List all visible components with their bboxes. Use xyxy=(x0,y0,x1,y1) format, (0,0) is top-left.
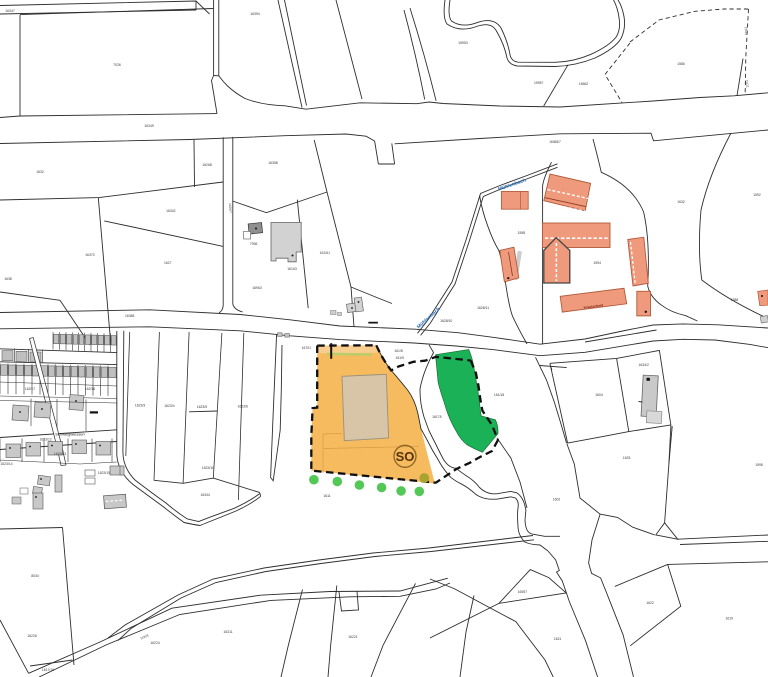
svg-text:1623/15: 1623/15 xyxy=(98,471,110,475)
svg-text:16368/7: 16368/7 xyxy=(549,140,561,144)
svg-text:1623/6: 1623/6 xyxy=(238,405,248,409)
svg-text:1611: 1611 xyxy=(323,494,330,498)
svg-text:162/16: 162/16 xyxy=(85,387,95,391)
svg-text:1592: 1592 xyxy=(753,193,761,197)
svg-text:1623/13: 1623/13 xyxy=(54,452,66,456)
svg-text:1628/11: 1628/11 xyxy=(477,306,489,310)
svg-text:1623/5: 1623/5 xyxy=(197,405,207,409)
svg-text:1632: 1632 xyxy=(677,200,685,204)
svg-text:16347: 16347 xyxy=(5,9,15,13)
svg-text:16370: 16370 xyxy=(85,253,95,257)
svg-text:7026: 7026 xyxy=(113,63,121,67)
svg-text:161/8: 161/8 xyxy=(394,349,403,353)
svg-text:1617/16: 1617/16 xyxy=(42,668,54,672)
svg-text:1632: 1632 xyxy=(36,170,44,174)
svg-text:1633: 1633 xyxy=(623,456,631,460)
svg-text:1619: 1619 xyxy=(725,616,733,620)
svg-text:16342: 16342 xyxy=(166,209,176,213)
svg-text:1621: 1621 xyxy=(554,637,562,641)
svg-text:8034: 8034 xyxy=(31,574,39,578)
svg-text:15/23: 15/23 xyxy=(744,27,748,35)
svg-text:1628/10: 1628/10 xyxy=(440,319,452,323)
svg-text:1634/2: 1634/2 xyxy=(639,363,649,367)
svg-text:1623/3: 1623/3 xyxy=(135,404,145,408)
svg-text:16562: 16562 xyxy=(579,82,589,86)
svg-text:1627: 1627 xyxy=(164,261,172,265)
svg-text:161/9: 161/9 xyxy=(395,356,404,360)
svg-text:16368: 16368 xyxy=(125,314,135,318)
svg-text:16394: 16394 xyxy=(250,12,260,16)
svg-text:1622: 1622 xyxy=(646,601,654,605)
svg-text:161/61: 161/61 xyxy=(320,251,330,255)
svg-text:1623/14: 1623/14 xyxy=(0,462,12,466)
svg-text:1598: 1598 xyxy=(755,463,763,467)
svg-text:16311: 16311 xyxy=(223,630,232,634)
svg-text:16226: 16226 xyxy=(27,634,37,638)
svg-text:1623/4: 1623/4 xyxy=(164,404,174,408)
svg-text:1604: 1604 xyxy=(595,393,603,397)
svg-text:1586: 1586 xyxy=(677,62,685,66)
svg-text:16178: 16178 xyxy=(432,415,442,419)
svg-text:16268: 16268 xyxy=(202,163,212,167)
svg-text:16163: 16163 xyxy=(287,267,297,271)
svg-text:SO: SO xyxy=(396,449,415,464)
svg-text:16963: 16963 xyxy=(252,286,262,290)
svg-text:1598: 1598 xyxy=(518,231,526,235)
svg-text:16701: 16701 xyxy=(302,346,312,350)
svg-text:1588: 1588 xyxy=(731,298,739,302)
svg-text:16224: 16224 xyxy=(150,641,160,645)
svg-text:16349: 16349 xyxy=(144,124,154,128)
svg-text:1623/16: 1623/16 xyxy=(202,466,214,470)
svg-text:161/18: 161/18 xyxy=(494,393,504,397)
svg-text:Schweigwiessen: Schweigwiessen xyxy=(55,432,85,437)
svg-text:1623/12: 1623/12 xyxy=(39,438,51,442)
svg-text:1602: 1602 xyxy=(553,498,561,502)
svg-text:1594: 1594 xyxy=(593,261,601,265)
svg-text:15953: 15953 xyxy=(458,41,468,45)
svg-text:16358: 16358 xyxy=(268,161,278,165)
svg-text:15957: 15957 xyxy=(534,81,544,85)
svg-text:162/17: 162/17 xyxy=(25,387,35,391)
svg-text:1638: 1638 xyxy=(4,277,12,281)
svg-text:16221: 16221 xyxy=(348,635,358,639)
svg-text:1626/7: 1626/7 xyxy=(228,203,233,213)
svg-text:16344: 16344 xyxy=(200,493,210,497)
svg-text:7936: 7936 xyxy=(250,242,258,246)
svg-text:16557: 16557 xyxy=(518,590,528,594)
